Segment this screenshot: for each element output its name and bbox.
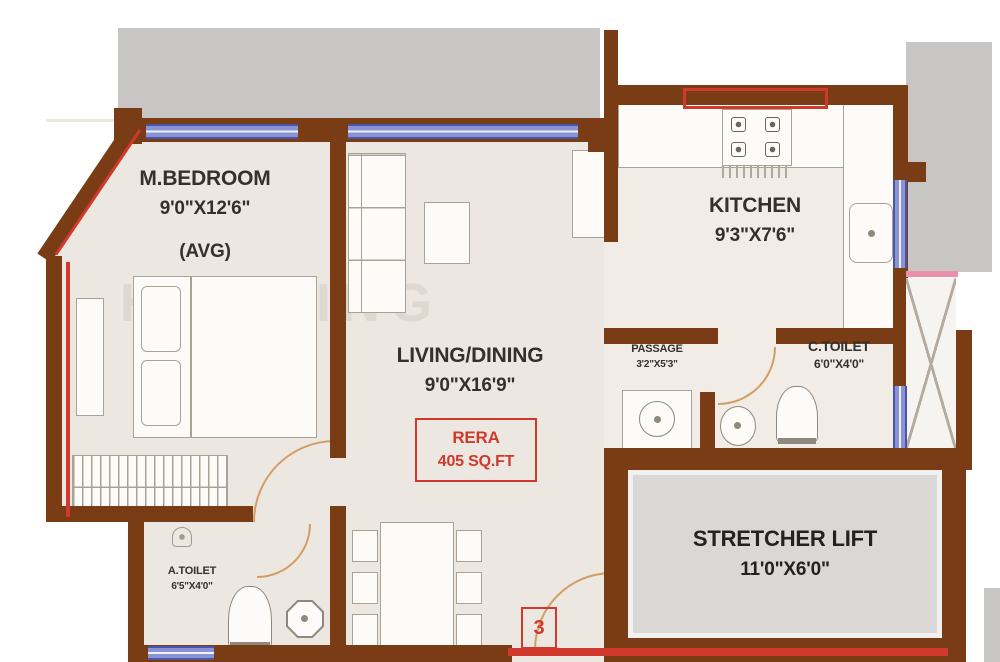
floor-plan: HOUSING (0, 0, 1000, 662)
bedroom-red-line-left (66, 262, 70, 517)
wall-kitchen-left-stub (588, 118, 606, 152)
living-window (348, 124, 578, 139)
wall-left (46, 256, 62, 520)
wall-bedroom-bottom (46, 506, 253, 522)
coffee-table (424, 202, 470, 264)
toilet-wc-icon (776, 386, 818, 442)
bed-pillow (141, 286, 181, 352)
atoilet-label: A.TOILET 6'5"X4'0" (146, 564, 238, 593)
ctoilet-dim: 6'0"X4'0" (786, 357, 892, 373)
living-label: LIVING/DINING 9'0"X16'9" (355, 342, 585, 399)
dining-table (380, 522, 454, 648)
bed-pillow (141, 360, 181, 426)
wc-base (778, 438, 816, 444)
passage-label: PASSAGE 3'2"X5'3" (616, 342, 698, 371)
sofa (348, 153, 406, 313)
kitchen-dim: 9'3"X7'6" (650, 224, 860, 249)
toilet-wc-icon (228, 586, 272, 648)
cabinet (572, 150, 606, 238)
wall-kitchen-left (604, 30, 618, 242)
flat-number-box: 3 (521, 607, 557, 649)
stretcher-lift-cab: STRETCHER LIFT 11'0"X6'0" (628, 470, 942, 638)
wall-lift-right (942, 448, 966, 662)
kitchen-name: KITCHEN (650, 192, 860, 219)
wall-bedroom-living-divider (330, 128, 346, 458)
wall-lift-left (604, 448, 628, 662)
atoilet-name: A.TOILET (146, 564, 238, 578)
washbasin-icon (720, 406, 756, 446)
pink-line (906, 271, 958, 277)
wall-kitchen-right-stub (908, 162, 926, 182)
stove-hob-icon (722, 109, 792, 166)
passage-name: PASSAGE (616, 342, 698, 356)
stretcher-lift-dim: 11'0"X6'0" (740, 558, 830, 583)
rera-badge: RERA 405 SQ.FT (415, 418, 537, 482)
exterior-area-top-left (118, 28, 600, 122)
ctoilet-name: C.TOILET (786, 337, 892, 355)
dining-chair (456, 530, 482, 562)
kitchen-window (893, 180, 907, 268)
atoilet-window (148, 646, 214, 660)
rera-line1: RERA (452, 427, 499, 449)
flat-number: 3 (534, 615, 545, 641)
red-threshold-line (508, 648, 948, 656)
window-ledge (76, 298, 104, 416)
wall-atoilet-left (128, 522, 144, 662)
atoilet-dim: 6'5"X4'0" (146, 580, 238, 593)
bedroom-name: M.BEDROOM (90, 165, 320, 192)
exterior-area-right (906, 42, 992, 272)
exterior-area-bottom-right (984, 588, 1000, 662)
duct-shaft (906, 278, 956, 450)
bedroom-dim: 9'0"X12'6" (90, 197, 320, 222)
counter-hatch (722, 166, 792, 178)
stretcher-lift-label: STRETCHER LIFT (693, 525, 877, 554)
dining-chair (456, 572, 482, 604)
passage-dim: 3'2"X5'3" (616, 358, 698, 371)
rera-line2: 405 SQ.FT (438, 452, 514, 473)
washing-machine-icon (622, 390, 692, 450)
ctoilet-window (893, 386, 907, 448)
dining-chair (352, 530, 378, 562)
dining-chair (352, 614, 378, 646)
bedroom-label: M.BEDROOM 9'0"X12'6" (AVG) (90, 165, 320, 265)
kitchen-label: KITCHEN 9'3"X7'6" (650, 192, 860, 249)
wall-lift-top (604, 448, 966, 470)
bedroom-window (146, 124, 298, 139)
living-dim: 9'0"X16'9" (355, 374, 585, 399)
wall-bedroom-bottom-stub (330, 506, 346, 522)
bottom-left-mask (44, 522, 130, 662)
kitchen-red-marker (683, 88, 828, 109)
living-name: LIVING/DINING (355, 342, 585, 369)
bedroom-note: (AVG) (90, 240, 320, 265)
washbasin-octagon-icon (286, 600, 324, 638)
dining-chair (456, 614, 482, 646)
dining-chair (352, 572, 378, 604)
ctoilet-label: C.TOILET 6'0"X4'0" (786, 337, 892, 373)
wall-passage-ctoilet-divider (700, 392, 715, 450)
shower-icon (172, 527, 192, 547)
wall-atoilet-right (330, 522, 346, 662)
